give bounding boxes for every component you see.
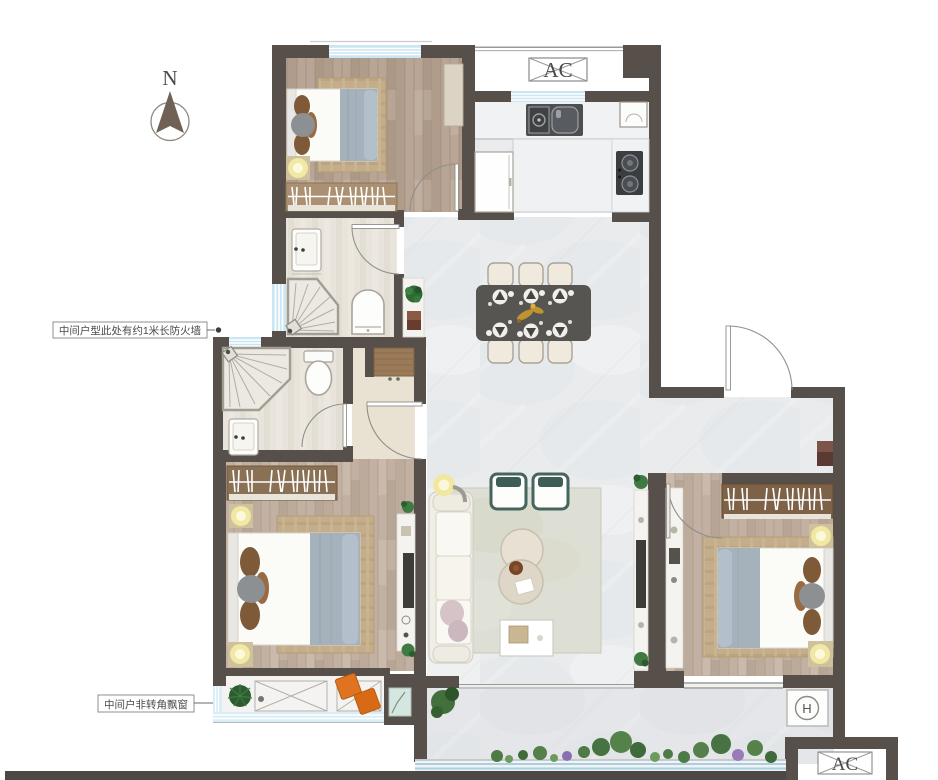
svg-text:中间户型此处有约1米长防火墙: 中间户型此处有约1米长防火墙 <box>59 324 202 337</box>
svg-text:中间户非转角飘窗: 中间户非转角飘窗 <box>104 698 188 711</box>
svg-text:AC: AC <box>832 754 858 775</box>
svg-text:AC: AC <box>543 58 572 82</box>
svg-text:H: H <box>802 701 811 716</box>
svg-text:N: N <box>162 66 177 90</box>
